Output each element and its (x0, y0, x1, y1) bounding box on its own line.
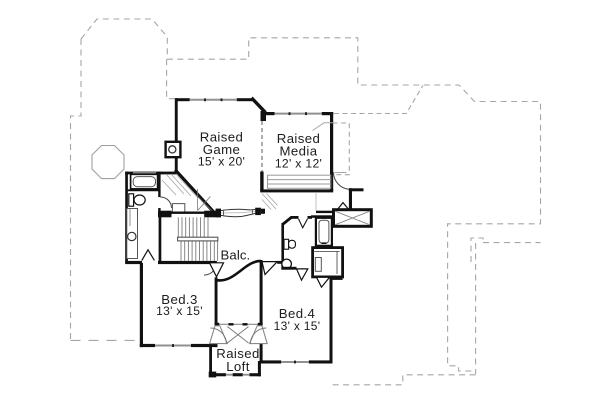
svg-text:15' x 20': 15' x 20' (198, 154, 245, 168)
svg-text:Loft: Loft (226, 359, 250, 374)
svg-text:13' x 15': 13' x 15' (274, 319, 321, 333)
svg-text:12' x 12': 12' x 12' (275, 156, 322, 170)
svg-text:Balc.: Balc. (221, 247, 251, 262)
svg-text:13' x 15': 13' x 15' (156, 304, 203, 318)
